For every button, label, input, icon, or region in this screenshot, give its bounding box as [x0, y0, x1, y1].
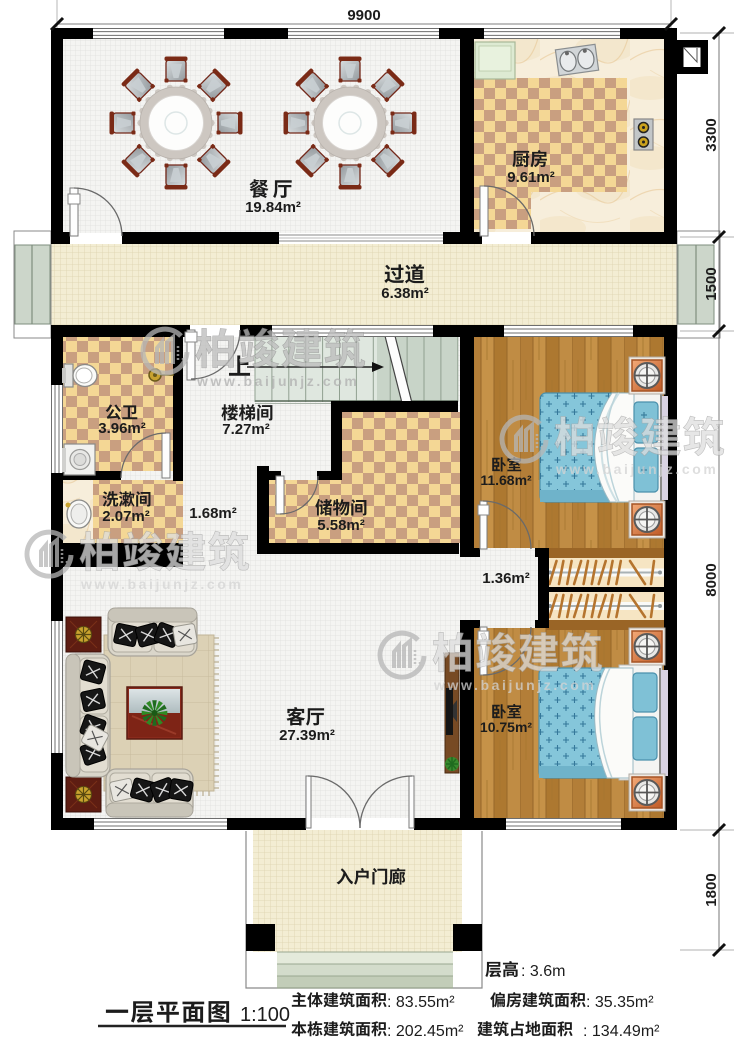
svg-text:11.68m²: 11.68m²	[480, 472, 532, 488]
svg-text:6.38m²: 6.38m²	[381, 285, 429, 302]
svg-text:19.84m²: 19.84m²	[245, 199, 301, 216]
svg-text:1800: 1800	[703, 873, 720, 906]
svg-text:1.36m²: 1.36m²	[482, 570, 530, 587]
svg-text:27.39m²: 27.39m²	[279, 727, 335, 744]
svg-text:5.58m²: 5.58m²	[317, 517, 365, 534]
svg-text:9.61m²: 9.61m²	[507, 169, 555, 186]
svg-text:1:100: 1:100	[240, 1004, 290, 1026]
svg-text:: 202.45m²: : 202.45m²	[387, 1023, 464, 1040]
svg-text:: 3.6m: : 3.6m	[521, 963, 565, 980]
svg-text:3.96m²: 3.96m²	[98, 420, 146, 437]
svg-text:3300: 3300	[703, 118, 720, 151]
svg-text:1.68m²: 1.68m²	[189, 505, 237, 522]
svg-text:www.baijunjz.com: www.baijunjz.com	[80, 576, 243, 592]
svg-text:1500: 1500	[703, 267, 720, 300]
svg-text:2.07m²: 2.07m²	[102, 508, 150, 525]
svg-text:www.baijunjz.com: www.baijunjz.com	[555, 461, 718, 477]
svg-text:7.27m²: 7.27m²	[222, 421, 270, 438]
svg-text:: 83.55m²: : 83.55m²	[387, 994, 455, 1011]
svg-text:8000: 8000	[703, 563, 720, 596]
svg-text:10.75m²: 10.75m²	[480, 719, 532, 735]
svg-text:: 35.35m²: : 35.35m²	[586, 994, 654, 1011]
svg-text:www.baijunjz.com: www.baijunjz.com	[433, 677, 596, 693]
svg-text:9900: 9900	[347, 7, 380, 24]
svg-text:: 134.49m²: : 134.49m²	[583, 1023, 660, 1040]
svg-text:www.baijunjz.com: www.baijunjz.com	[196, 373, 359, 389]
